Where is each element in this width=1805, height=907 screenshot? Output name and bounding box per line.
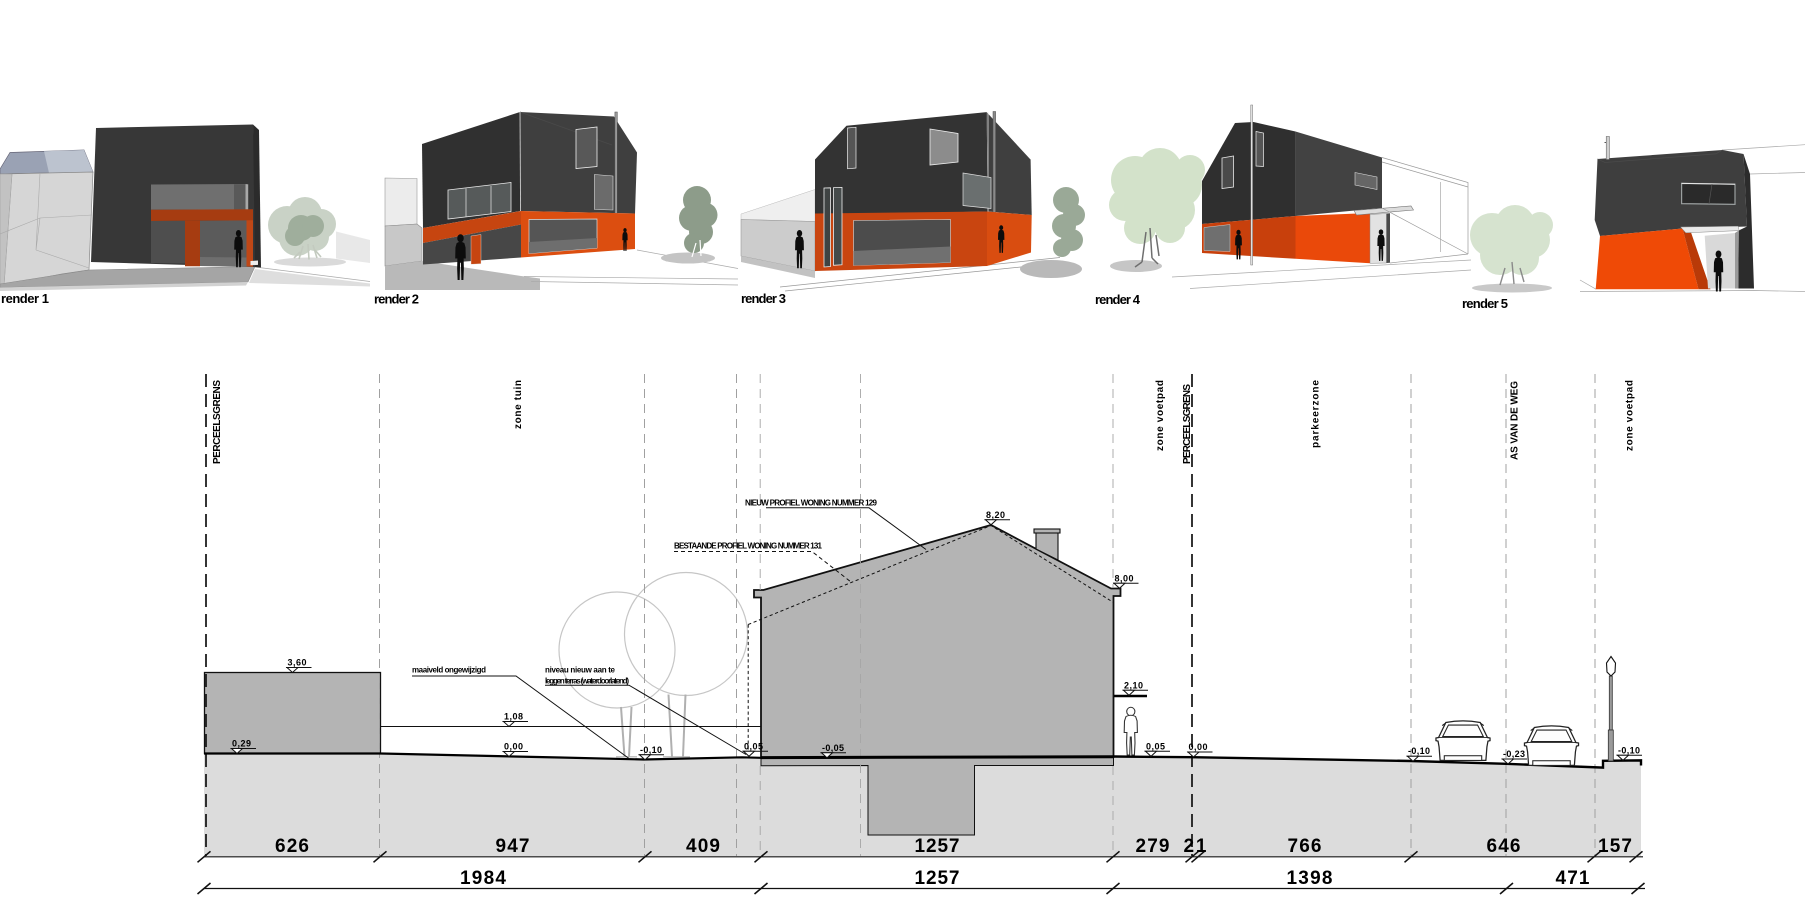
svg-text:1257: 1257 <box>915 836 960 857</box>
svg-text:BESTAANDE PROFIEL WONING NUMME: BESTAANDE PROFIEL WONING NUMMER 131 <box>674 542 823 551</box>
svg-text:0,00: 0,00 <box>504 742 523 752</box>
svg-text:-0,23: -0,23 <box>1503 749 1525 759</box>
svg-text:646: 646 <box>1487 836 1521 857</box>
svg-text:-0,10: -0,10 <box>640 745 662 755</box>
svg-text:157: 157 <box>1598 836 1632 857</box>
svg-text:0,05: 0,05 <box>744 741 763 751</box>
svg-text:21: 21 <box>1184 836 1207 857</box>
svg-text:626: 626 <box>275 836 309 857</box>
svg-text:leggen terras (waterdoorlatend: leggen terras (waterdoorlatend) <box>545 676 629 685</box>
svg-text:3,60: 3,60 <box>288 658 307 668</box>
svg-text:8,00: 8,00 <box>1115 573 1134 583</box>
svg-text:0,00: 0,00 <box>1189 742 1208 752</box>
svg-text:-0,05: -0,05 <box>822 743 844 753</box>
svg-text:947: 947 <box>496 836 530 857</box>
svg-text:parkeerzone: parkeerzone <box>1311 380 1322 448</box>
svg-text:1257: 1257 <box>915 868 960 889</box>
svg-text:render 4: render 4 <box>1095 292 1141 307</box>
svg-text:zone voetpad: zone voetpad <box>1155 380 1166 451</box>
svg-text:render 2: render 2 <box>374 292 419 307</box>
svg-text:471: 471 <box>1556 868 1590 889</box>
svg-text:zone voetpad: zone voetpad <box>1625 380 1636 451</box>
svg-text:2,10: 2,10 <box>1124 680 1143 690</box>
svg-text:1,08: 1,08 <box>504 712 523 722</box>
svg-text:8,20: 8,20 <box>986 510 1005 520</box>
svg-text:niveau nieuw aan te: niveau nieuw aan te <box>545 666 616 675</box>
svg-text:render 1: render 1 <box>1 291 49 306</box>
svg-text:-0,10: -0,10 <box>1408 746 1430 756</box>
svg-text:render 3: render 3 <box>741 291 786 306</box>
svg-text:-0,10: -0,10 <box>1618 745 1640 755</box>
svg-text:maaiveld ongewijzigd: maaiveld ongewijzigd <box>412 665 486 674</box>
svg-text:PERCEELSGRENS: PERCEELSGRENS <box>212 380 223 464</box>
svg-text:render 5: render 5 <box>1462 296 1508 311</box>
svg-text:279: 279 <box>1136 836 1170 857</box>
svg-text:AS VAN DE WEG: AS VAN DE WEG <box>1510 381 1521 460</box>
svg-text:zone tuin: zone tuin <box>513 380 524 429</box>
svg-text:0,29: 0,29 <box>232 739 251 749</box>
svg-text:766: 766 <box>1288 836 1322 857</box>
svg-text:0,05: 0,05 <box>1146 741 1165 751</box>
svg-text:1398: 1398 <box>1287 868 1333 889</box>
svg-text:PERCEELSGRENS: PERCEELSGRENS <box>1182 384 1193 464</box>
svg-text:409: 409 <box>686 836 720 857</box>
svg-text:NIEUW PROFIEL WONING NUMMER 12: NIEUW PROFIEL WONING NUMMER 129 <box>745 499 878 508</box>
svg-text:1984: 1984 <box>460 868 506 889</box>
